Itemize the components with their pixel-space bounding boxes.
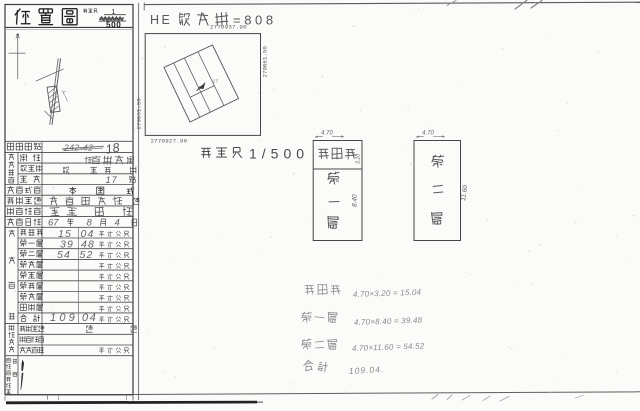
svg-text:279031.50: 279031.50 [136, 98, 143, 130]
svg-text:2770927.90: 2770927.90 [151, 138, 188, 145]
svg-text:4.70: 4.70 [422, 131, 434, 137]
svg-text:279061.50: 279061.50 [262, 46, 269, 78]
svg-text:4: 4 [115, 218, 120, 229]
svg-text:500: 500 [106, 21, 121, 30]
svg-text:109: 109 [50, 312, 78, 324]
svg-text:17: 17 [213, 79, 219, 85]
svg-text:04: 04 [82, 312, 97, 324]
svg-text:54: 54 [57, 249, 71, 261]
svg-text:HE: HE [150, 13, 172, 27]
svg-text:2770937.90: 2770937.90 [210, 24, 247, 31]
svg-text:1/500: 1/500 [249, 146, 309, 162]
svg-text:18: 18 [105, 140, 121, 156]
svg-text:52: 52 [80, 249, 94, 261]
svg-text:109.04.: 109.04. [349, 364, 385, 376]
svg-text:3.20: 3.20 [356, 154, 362, 164]
svg-text:17: 17 [106, 175, 118, 185]
svg-text:8.40: 8.40 [352, 194, 359, 207]
svg-text:4.70: 4.70 [321, 131, 333, 137]
